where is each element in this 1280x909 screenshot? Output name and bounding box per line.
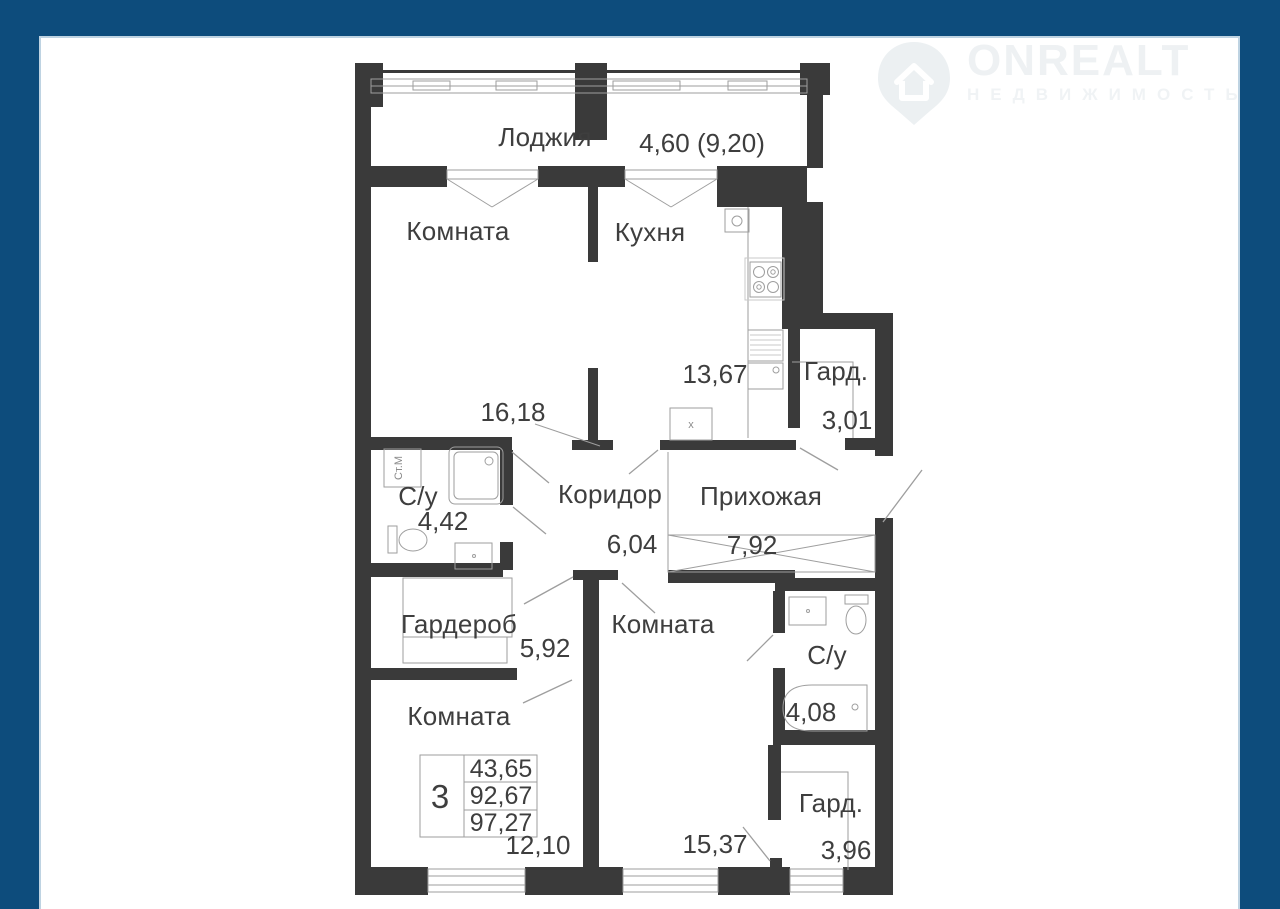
- label-room-bottom-left: Комната: [407, 701, 511, 731]
- label-loggia: Лоджия: [498, 122, 591, 152]
- area-bathroom-left: 4,42: [418, 506, 469, 536]
- area-wardrobe-middle: 5,92: [520, 633, 571, 663]
- area-room-bottom-left: 12,10: [505, 830, 570, 860]
- area-bathroom-right: 4,08: [786, 697, 837, 727]
- floorplan-page: { "brand": { "name": "ONREALT", "subtitl…: [0, 0, 1280, 909]
- label-room-top-left: Комната: [406, 216, 510, 246]
- area-hallway: 7,92: [727, 530, 778, 560]
- area-corridor: 6,04: [607, 529, 658, 559]
- stats-table: 3 43,65 92,67 97,27: [420, 755, 537, 837]
- label-wardrobe-top: Гард.: [804, 356, 868, 386]
- label-bathroom-right: С/у: [807, 640, 847, 670]
- area-room-top-left: 16,18: [480, 397, 545, 427]
- label-kitchen: Кухня: [615, 217, 686, 247]
- area-kitchen: 13,67: [682, 359, 747, 389]
- stats-area: 92,67: [470, 782, 533, 810]
- label-wardrobe-bottom: Гард.: [799, 788, 863, 818]
- label-hallway: Прихожая: [700, 481, 822, 511]
- area-wardrobe-top: 3,01: [822, 405, 873, 435]
- label-wardrobe-middle: Гардероб: [401, 609, 517, 639]
- vent-label: x: [688, 419, 694, 431]
- stats-rooms-count: 3: [431, 778, 449, 815]
- area-room-middle: 15,37: [682, 829, 747, 859]
- area-loggia: 4,60 (9,20): [639, 128, 765, 158]
- kitchen-fixtures: [670, 207, 784, 440]
- area-wardrobe-bottom: 3,96: [821, 835, 872, 865]
- stats-living-area: 43,65: [470, 755, 533, 783]
- loggia-french-window-left: [447, 170, 538, 207]
- label-room-middle: Комната: [611, 609, 715, 639]
- label-corridor: Коридор: [558, 479, 662, 509]
- floorplan-drawing: 3 43,65 92,67 97,27 Лоджия 4,60 (9,20) К…: [0, 0, 1280, 909]
- washing-machine-label: Ст.М: [393, 456, 405, 480]
- loggia-french-window-right: [625, 170, 717, 207]
